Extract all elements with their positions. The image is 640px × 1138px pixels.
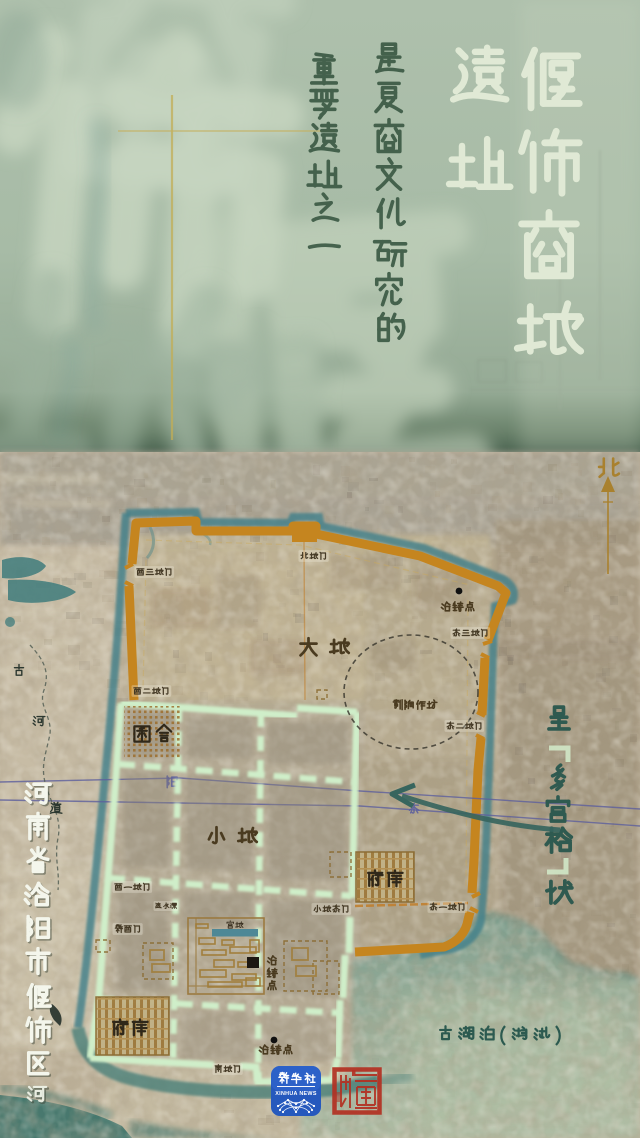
svg-text:XINHUA NEWS: XINHUA NEWS — [275, 1091, 317, 1097]
